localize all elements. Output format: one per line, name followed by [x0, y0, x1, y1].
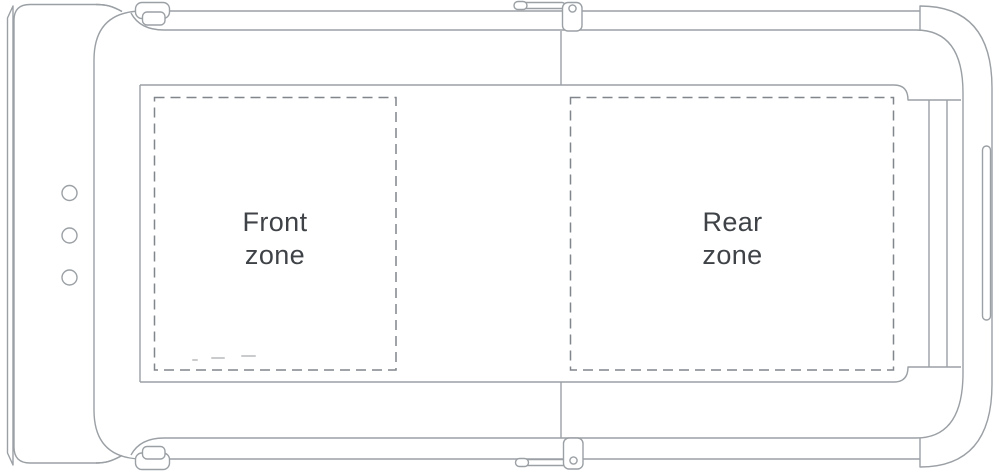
faint-artifact-mark — [241, 355, 256, 357]
faint-artifact-mark — [211, 357, 225, 359]
rear-zone-label-line2: zone — [571, 239, 894, 272]
left-side-strip — [8, 6, 14, 465]
front-zone-label-line1: Front — [154, 206, 396, 239]
front-zone-label-line2: zone — [154, 239, 396, 272]
end-cap-outline — [920, 6, 992, 467]
device-top-view-diagram: Front zone Rear zone — [0, 0, 995, 472]
front-zone-label: Front zone — [154, 206, 396, 272]
faint-artifact-mark — [192, 359, 198, 361]
rear-zone-label: Rear zone — [571, 206, 894, 272]
rear-zone-label-line1: Rear — [571, 206, 894, 239]
side-slot-icon — [983, 146, 991, 320]
